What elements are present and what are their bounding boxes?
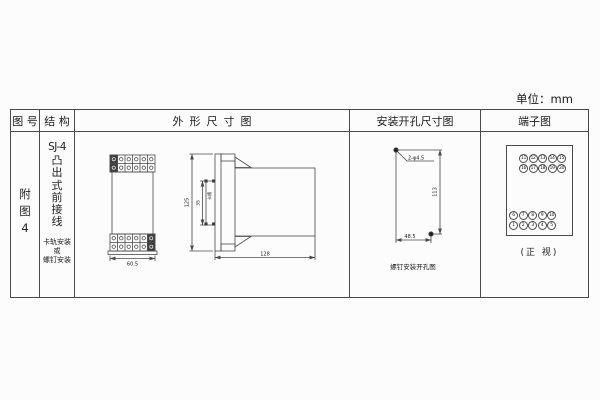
cell-structure: SJ-4 凸出式前接线 卡轨安装 或 螺钉安装: [39, 132, 74, 297]
mount-note-line: 螺钉安装: [40, 256, 74, 265]
mounting-caption: 螺钉安装开孔图: [390, 262, 436, 271]
notch-height-dim: 35: [196, 200, 202, 206]
terminal-number: 7: [519, 211, 528, 220]
cell-terminal-diagram: 1112131415 1617181920 678910 12345 (正 视): [480, 132, 588, 297]
terminal-number: 8: [528, 211, 537, 220]
terminal-number: 3: [528, 221, 537, 230]
cell-mounting-drawing: 2-φ4.5 113 48.5 螺钉安装开孔图: [349, 132, 480, 297]
fig-no-text: 附图4: [19, 186, 32, 237]
terminal-number: 16: [519, 164, 528, 173]
outline-dimension-drawing: 60.5: [75, 132, 350, 297]
holes-dim-label: 2-φ4.5: [408, 156, 424, 162]
terminal-caption: (正 视): [506, 245, 573, 258]
cell-fig-no: 附图4: [11, 132, 39, 297]
unit-label: 单位：mm: [516, 91, 573, 107]
spec-table: 图 号 结 构 外形尺寸图 安装开孔尺寸图 端子图 附图4 SJ-4 凸出式前接…: [10, 109, 589, 298]
terminal-number: 9: [538, 211, 547, 220]
front-width-dim: 60.5: [127, 262, 138, 268]
terminal-number: 19: [548, 164, 557, 173]
structure-type-text: 凸出式前接线: [51, 155, 63, 229]
mounting-hole-bottom: [429, 232, 433, 236]
vertical-dim-label: 113: [433, 187, 439, 197]
front-view: [108, 155, 157, 261]
terminal-outline: 1112131415 1617181920 678910 12345: [506, 145, 573, 236]
terminal-number: 12: [529, 154, 538, 163]
side-depth-dim: 128: [260, 252, 270, 258]
terminal-number: 20: [557, 164, 566, 173]
terminal-number: 14: [548, 154, 557, 163]
mount-notes: 卡轨安装 或 螺钉安装: [40, 238, 74, 265]
terminal-number: 17: [529, 164, 538, 173]
header-terminal: 端子图: [480, 110, 588, 132]
horizontal-dim-label: 48.5: [404, 234, 415, 240]
mount-note-line: 卡轨安装: [40, 238, 74, 247]
side-height-dim: 125: [185, 198, 191, 208]
terminal-number: 5: [547, 221, 556, 230]
notch-label: 卡槽: [206, 192, 212, 200]
terminal-number: 1: [509, 221, 518, 230]
cell-outline-drawing: 60.5: [74, 132, 349, 297]
mount-note-line: 或: [40, 247, 74, 256]
terminal-number: 4: [538, 221, 547, 230]
terminal-row-16-20: 1617181920: [519, 164, 566, 173]
side-view: [190, 154, 316, 260]
terminal-number: 6: [509, 211, 518, 220]
terminal-row-1-5: 12345: [509, 221, 556, 230]
model-label: SJ-4: [40, 141, 74, 153]
terminal-number: 11: [519, 154, 528, 163]
terminal-number: 15: [557, 154, 566, 163]
spec-sheet-page: 单位：mm 图 号 结 构 外形尺寸图 安装开孔尺寸图 端子图 附图4 SJ-4…: [0, 0, 600, 400]
header-fig-no: 图 号: [11, 110, 39, 132]
header-outline: 外形尺寸图: [74, 110, 349, 132]
terminal-row-6-10: 678910: [509, 211, 556, 220]
header-structure: 结 构: [39, 110, 74, 132]
terminal-number: 2: [519, 221, 528, 230]
header-mounting: 安装开孔尺寸图: [349, 110, 480, 132]
mounting-hole-drawing: 2-φ4.5 113 48.5 螺钉安装开孔图: [350, 132, 481, 297]
terminal-number: 13: [538, 154, 547, 163]
terminal-row-11-15: 1112131415: [519, 154, 566, 163]
terminal-number: 18: [538, 164, 547, 173]
terminal-number: 10: [547, 211, 556, 220]
